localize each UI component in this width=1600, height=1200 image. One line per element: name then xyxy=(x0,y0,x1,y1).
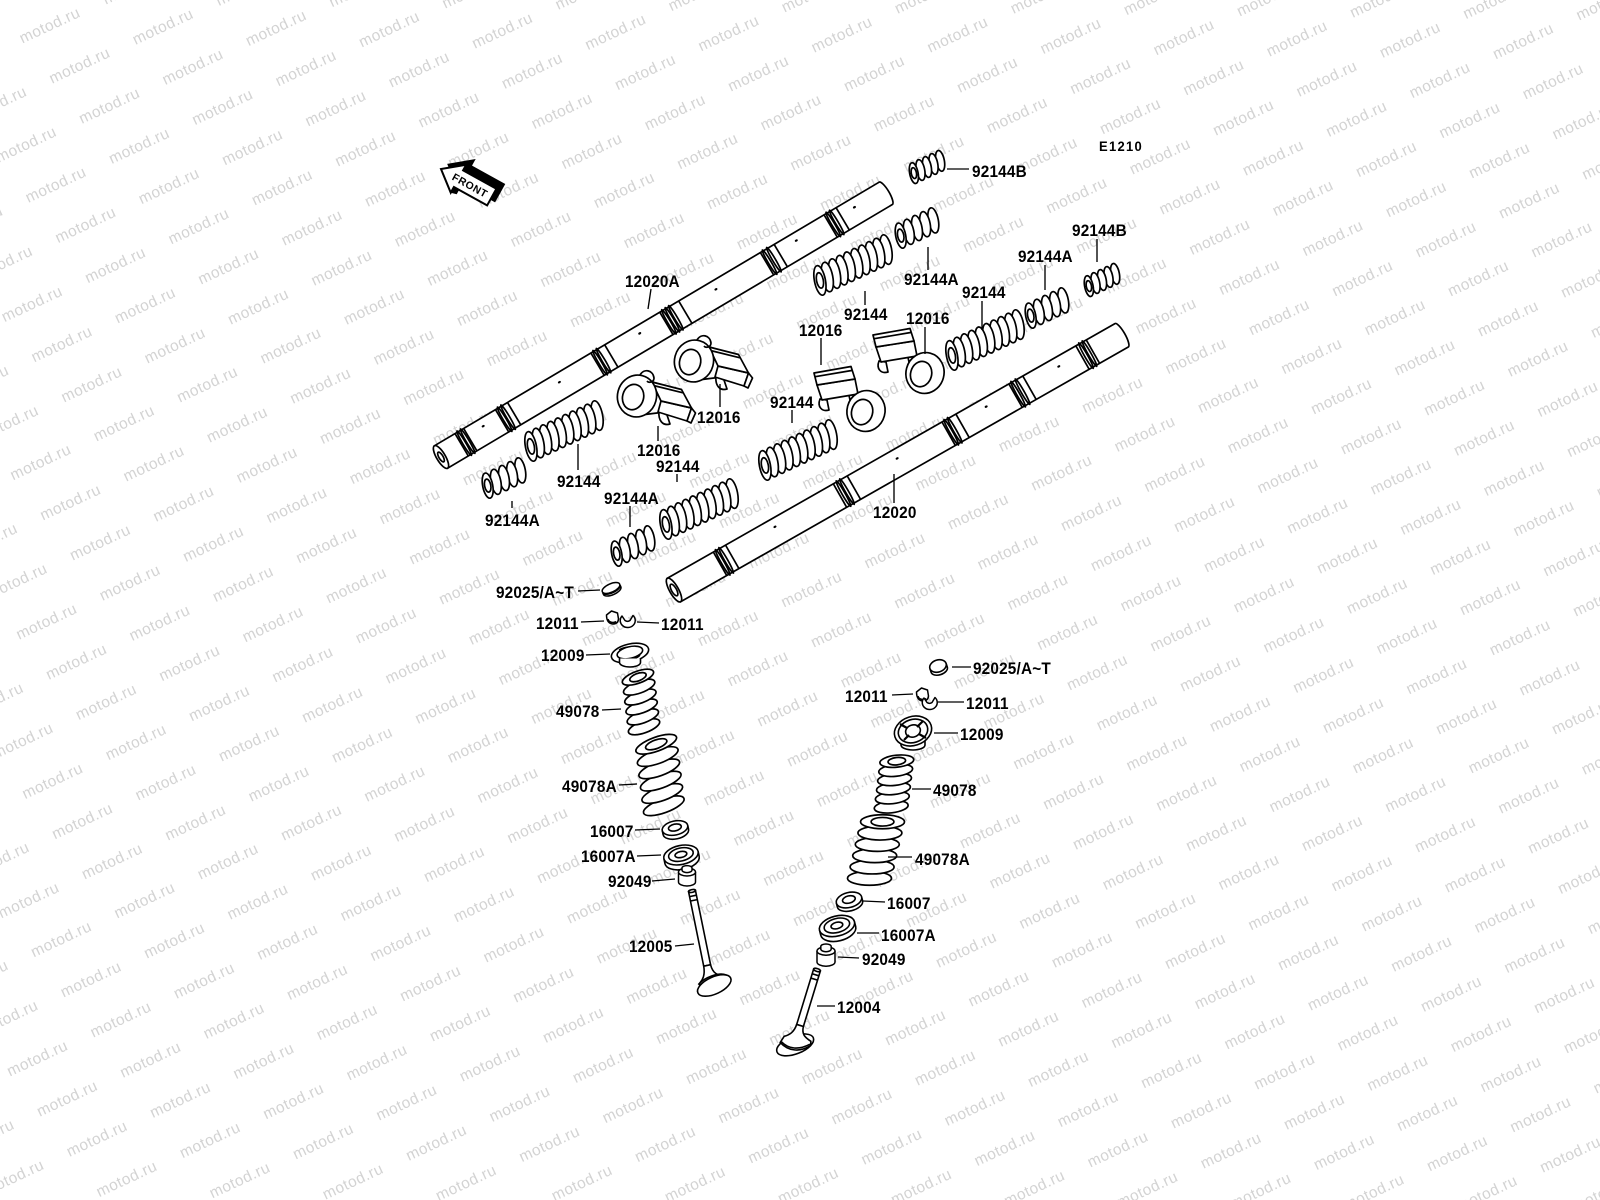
svg-text:49078A: 49078A xyxy=(915,852,970,870)
svg-text:92144A: 92144A xyxy=(485,513,540,531)
svg-text:16007A: 16007A xyxy=(581,849,636,867)
svg-text:12020: 12020 xyxy=(873,505,917,523)
svg-text:16007: 16007 xyxy=(590,824,634,842)
svg-text:16007A: 16007A xyxy=(881,928,936,946)
svg-text:49078: 49078 xyxy=(933,783,977,801)
svg-text:12011: 12011 xyxy=(845,689,888,707)
svg-text:92049: 92049 xyxy=(608,874,652,892)
svg-text:12016: 12016 xyxy=(637,443,681,461)
svg-text:12005: 12005 xyxy=(629,939,673,957)
svg-text:92025/A~T: 92025/A~T xyxy=(496,585,574,603)
svg-text:92144: 92144 xyxy=(557,474,601,492)
svg-text:92049: 92049 xyxy=(862,952,906,970)
svg-text:92144: 92144 xyxy=(656,459,700,477)
svg-text:92144A: 92144A xyxy=(604,491,659,509)
svg-text:12016: 12016 xyxy=(697,410,741,428)
svg-text:12009: 12009 xyxy=(541,648,585,666)
svg-text:12011: 12011 xyxy=(661,617,704,635)
svg-text:E1210: E1210 xyxy=(1099,139,1143,155)
svg-text:92144: 92144 xyxy=(962,285,1006,303)
svg-text:92144B: 92144B xyxy=(1072,223,1127,241)
svg-text:12011: 12011 xyxy=(966,696,1009,714)
svg-text:49078: 49078 xyxy=(556,704,600,722)
svg-text:49078A: 49078A xyxy=(562,779,617,797)
svg-text:92025/A~T: 92025/A~T xyxy=(973,661,1051,679)
svg-text:92144A: 92144A xyxy=(1018,249,1073,267)
svg-text:12020A: 12020A xyxy=(625,274,680,292)
svg-text:92144A: 92144A xyxy=(904,272,959,290)
svg-text:12009: 12009 xyxy=(960,727,1004,745)
svg-text:12004: 12004 xyxy=(837,1000,881,1018)
svg-text:12016: 12016 xyxy=(799,323,843,341)
svg-text:92144B: 92144B xyxy=(972,164,1027,182)
svg-text:92144: 92144 xyxy=(844,307,888,325)
svg-text:92144: 92144 xyxy=(770,395,814,413)
svg-text:12016: 12016 xyxy=(906,311,950,329)
svg-text:16007: 16007 xyxy=(887,896,931,914)
svg-text:12011: 12011 xyxy=(536,616,579,634)
